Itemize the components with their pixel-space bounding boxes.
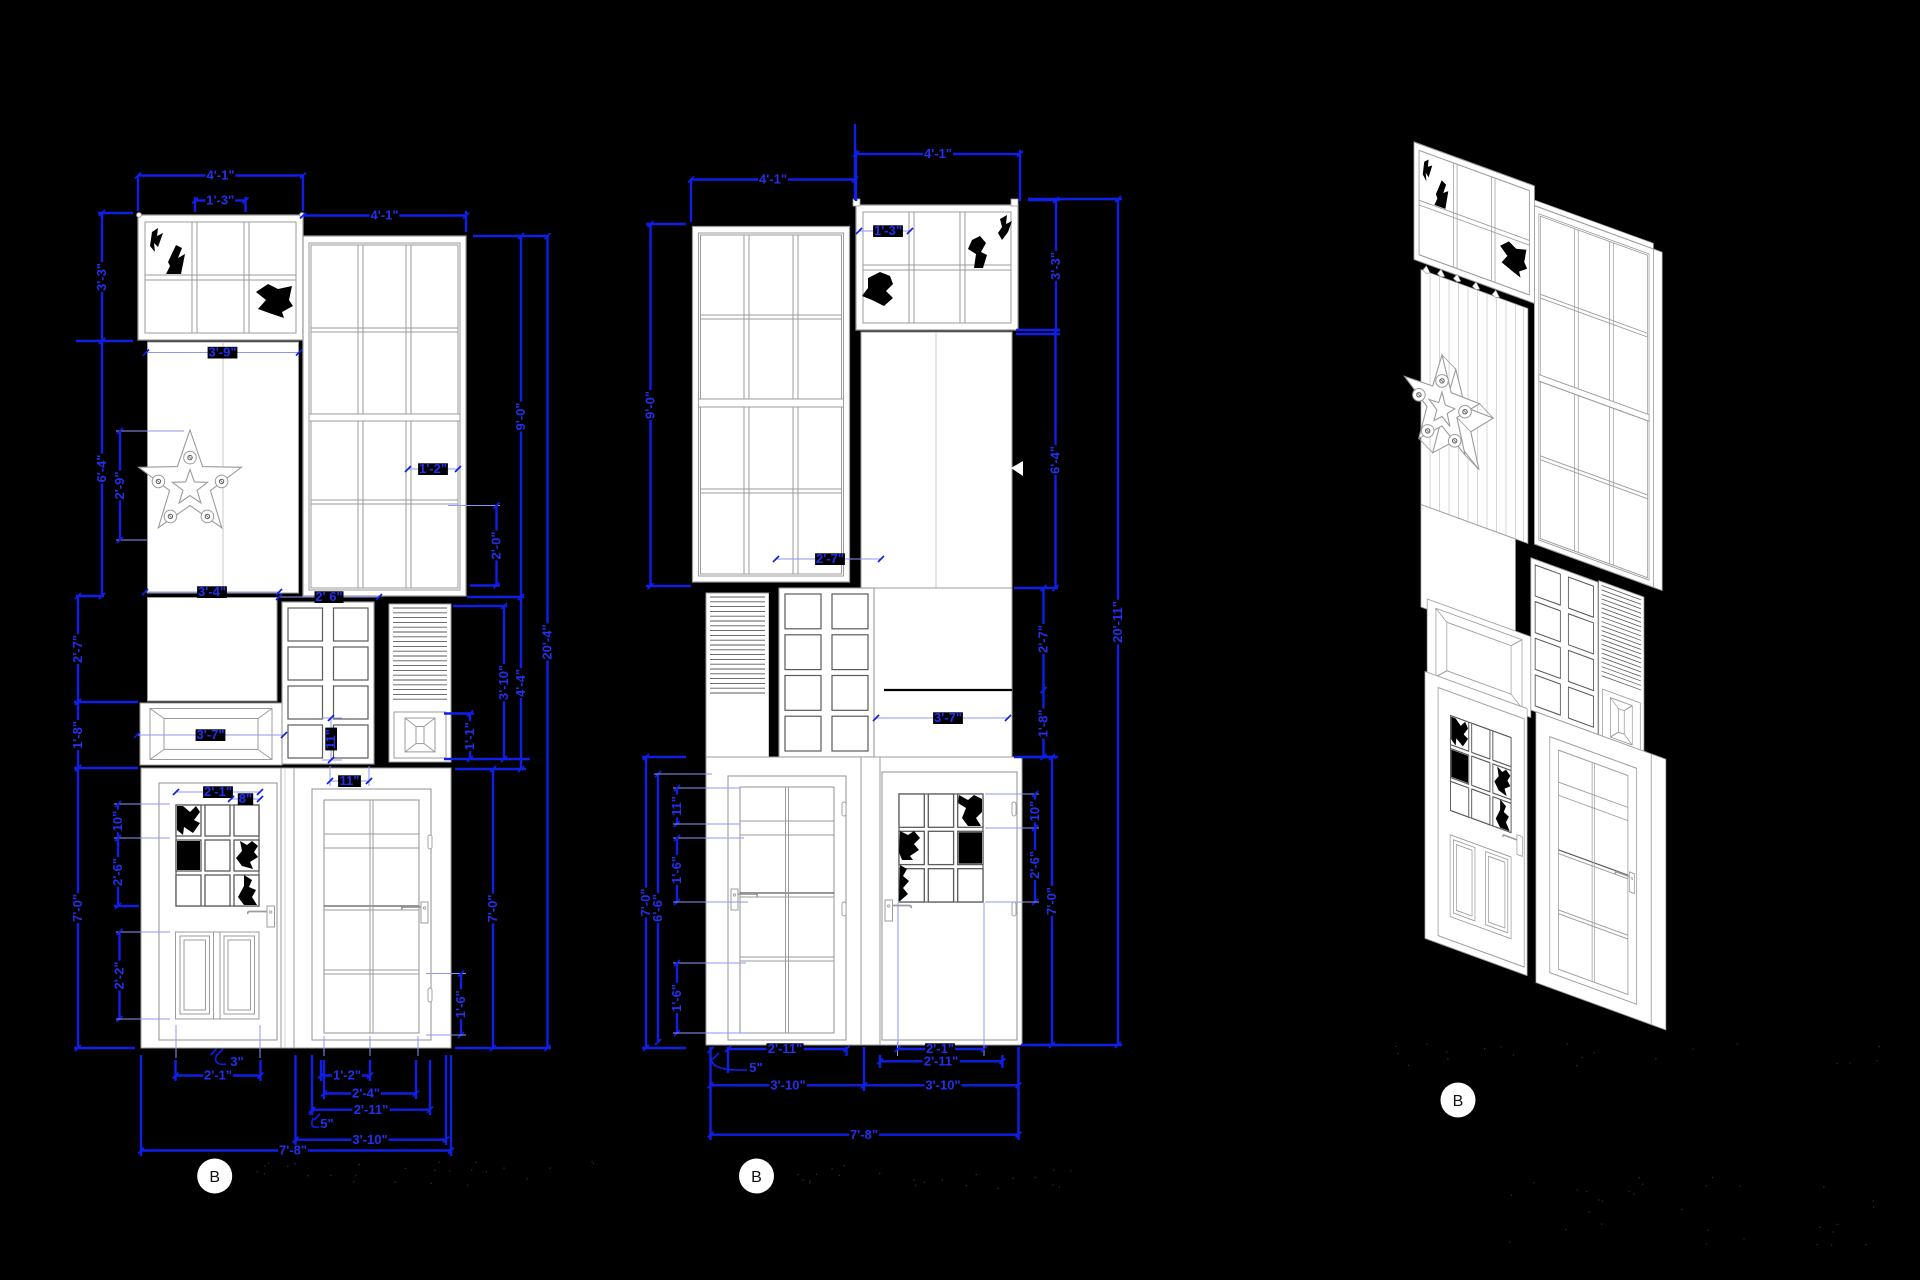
svg-text:2'-11": 2'-11" — [354, 1102, 389, 1117]
svg-text:7'-0": 7'-0" — [1044, 887, 1059, 915]
svg-text:3'-3": 3'-3" — [1048, 252, 1063, 280]
svg-text:1'-3": 1'-3" — [874, 223, 902, 238]
svg-text:7'-0": 7'-0" — [70, 894, 85, 922]
svg-text:1'-6": 1'-6" — [453, 990, 468, 1018]
svg-text:3'-7": 3'-7" — [196, 727, 224, 742]
svg-text:4'-1": 4'-1" — [924, 146, 952, 161]
svg-text:5": 5" — [320, 1116, 333, 1131]
svg-text:10": 10" — [1027, 801, 1042, 822]
svg-text:6'-4": 6'-4" — [94, 454, 109, 482]
svg-text:3'-4": 3'-4" — [198, 584, 226, 599]
svg-text:B: B — [209, 1169, 220, 1186]
svg-text:3'-10": 3'-10" — [925, 1078, 960, 1093]
svg-text:1'-2": 1'-2" — [333, 1068, 361, 1083]
svg-text:1'-6": 1'-6" — [669, 984, 684, 1012]
svg-text:5": 5" — [749, 1060, 762, 1075]
svg-text:2'-2": 2'-2" — [112, 961, 127, 989]
svg-text:9'-0": 9'-0" — [643, 391, 658, 419]
svg-text:1'-1": 1'-1" — [462, 722, 477, 750]
svg-text:20'-11": 20'-11" — [1110, 601, 1125, 643]
svg-text:3'-3": 3'-3" — [94, 263, 109, 291]
svg-text:8": 8" — [239, 791, 252, 806]
svg-text:2'-1": 2'-1" — [204, 1068, 232, 1083]
svg-text:3'-7": 3'-7" — [934, 710, 962, 725]
svg-text:10": 10" — [110, 811, 125, 832]
svg-text:9'-0": 9'-0" — [513, 402, 528, 430]
svg-text:2'-4": 2'-4" — [352, 1086, 380, 1101]
svg-text:3": 3" — [230, 1054, 243, 1069]
svg-text:4'-4": 4'-4" — [513, 669, 528, 697]
svg-text:2' 6": 2' 6" — [315, 589, 342, 604]
svg-text:4'-1": 4'-1" — [206, 168, 234, 183]
svg-text:2'-6": 2'-6" — [1027, 851, 1042, 879]
svg-text:11": 11" — [340, 773, 360, 788]
svg-text:1'-2": 1'-2" — [419, 461, 447, 476]
svg-text:7'-8": 7'-8" — [850, 1127, 878, 1142]
svg-text:3'-10": 3'-10" — [352, 1132, 387, 1147]
svg-text:B: B — [751, 1169, 762, 1186]
svg-text:2'-1": 2'-1" — [204, 784, 232, 799]
svg-text:1'-3": 1'-3" — [206, 193, 234, 208]
svg-text:2'-7": 2'-7" — [1036, 625, 1051, 653]
svg-text:2'-7": 2'-7" — [816, 551, 844, 566]
svg-text:6'-6": 6'-6" — [650, 894, 665, 922]
svg-text:2'-7": 2'-7" — [70, 635, 85, 663]
svg-text:11": 11" — [669, 796, 684, 816]
svg-text:4'-1": 4'-1" — [370, 208, 398, 223]
svg-text:7'-0": 7'-0" — [485, 894, 500, 922]
svg-text:7'-8": 7'-8" — [279, 1143, 307, 1158]
svg-text:3'-10": 3'-10" — [496, 665, 511, 700]
svg-text:B: B — [1453, 1093, 1464, 1110]
svg-text:6'-4": 6'-4" — [1048, 446, 1063, 474]
svg-text:2'-0": 2'-0" — [489, 531, 504, 559]
svg-text:2'-11": 2'-11" — [924, 1054, 959, 1069]
svg-text:20'-4": 20'-4" — [540, 624, 555, 659]
svg-text:2'-11": 2'-11" — [768, 1041, 803, 1056]
svg-text:1'-8": 1'-8" — [1036, 709, 1051, 737]
svg-text:1'-6": 1'-6" — [669, 856, 684, 884]
svg-text:3'-9": 3'-9" — [208, 345, 236, 360]
svg-text:2'-6": 2'-6" — [110, 858, 125, 886]
svg-text:11": 11" — [323, 729, 338, 749]
svg-text:3'-10": 3'-10" — [770, 1078, 805, 1093]
svg-text:2'-9": 2'-9" — [112, 471, 127, 499]
svg-text:4'-1": 4'-1" — [759, 172, 787, 187]
svg-text:1'-8": 1'-8" — [70, 721, 85, 749]
